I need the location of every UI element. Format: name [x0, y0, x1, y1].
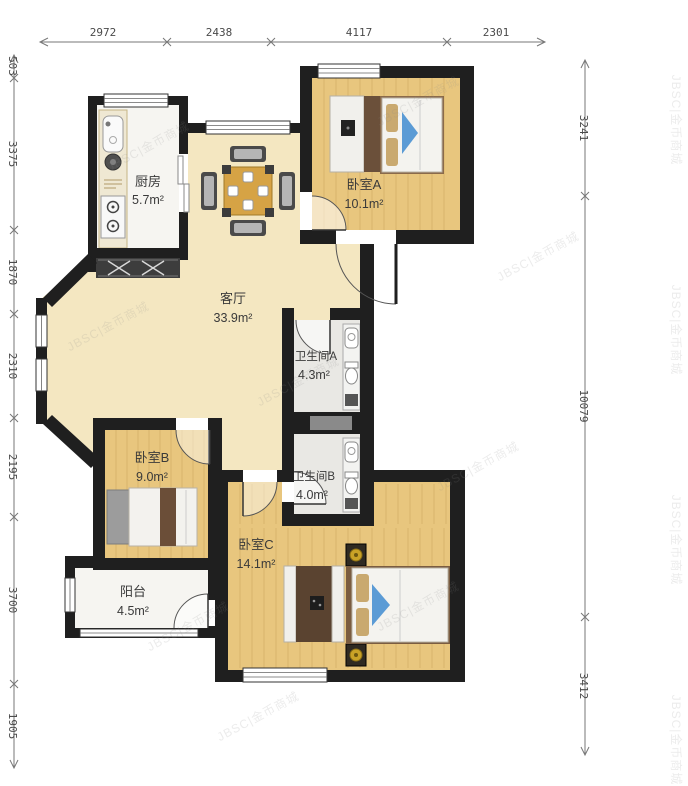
dim-top-4: 2301: [483, 26, 510, 39]
kitchen-window: [104, 94, 168, 107]
kitchen-area: 5.7m²: [132, 193, 164, 207]
balcony-side-window: [65, 578, 75, 612]
bedroom-c-label: 卧室C: [238, 537, 273, 552]
bedroom-a-label: 卧室A: [347, 177, 382, 192]
kitchen-label: 厨房: [135, 174, 161, 189]
watermark-text: JBSC|金币商城: [669, 75, 684, 166]
dim-right-2: 10079: [577, 389, 590, 422]
bedroom-b-label: 卧室B: [135, 450, 170, 465]
bathroom-b-fixtures: [343, 438, 360, 512]
dim-top-1: 2972: [90, 26, 117, 39]
living-area: 33.9m²: [214, 311, 253, 325]
bay-window-upper: [36, 315, 47, 347]
watermark-text: JBSC|金币商城: [669, 285, 684, 376]
dim-left-5: 2195: [6, 454, 19, 481]
dim-right-1: 3241: [577, 115, 590, 142]
watermark-text: JBSC|金币商城: [669, 695, 684, 786]
balcony-area: 4.5m²: [117, 604, 149, 618]
watermark-text: JBSC|金币商城: [669, 495, 684, 586]
living-label: 客厅: [220, 291, 246, 306]
dining-window: [206, 121, 290, 134]
dim-left-4: 2310: [6, 353, 19, 380]
bedroom-c-window: [243, 668, 327, 682]
dim-left-3: 1870: [6, 259, 19, 286]
dim-left-2: 3375: [6, 141, 19, 168]
bedroom-a-window: [318, 64, 380, 78]
bedroom-b-bed: [107, 488, 197, 546]
floor-plan-image: 厨房 5.7m² 卧室A 10.1m² 客厅 33.9m² 卫生间A 4.3m²…: [0, 0, 688, 786]
bathroom-a-fixtures: [343, 324, 360, 410]
bath-b-label: 卫生间B: [293, 469, 335, 483]
bedroom-a-area: 10.1m²: [345, 197, 384, 211]
balcony-label: 阳台: [120, 584, 146, 599]
dim-left-7: 1905: [6, 713, 19, 740]
watermark-text: JBSC|金币商城: [214, 688, 301, 744]
watermark-text: JBSC|金币商城: [434, 438, 521, 494]
bedroom-b-area: 9.0m²: [136, 470, 168, 484]
dim-right-3: 3412: [577, 673, 590, 700]
dim-left-6: 3700: [6, 587, 19, 614]
kitchen-counter: [99, 110, 127, 248]
kitchen-sliding-door: [178, 156, 189, 212]
bath-b-area: 4.0m²: [296, 488, 328, 502]
watermark-text: JBSC|金币商城: [494, 228, 581, 284]
bedroom-c-area: 14.1m²: [237, 557, 276, 571]
bay-window-lower: [36, 359, 47, 391]
floor-plan-svg: 厨房 5.7m² 卧室A 10.1m² 客厅 33.9m² 卫生间A 4.3m²…: [0, 0, 688, 786]
bedroom-a-bed-wardrobe: [330, 96, 444, 174]
dim-top-2: 2438: [206, 26, 233, 39]
dim-top-3: 4117: [346, 26, 373, 39]
dim-left-1: 503: [6, 56, 19, 76]
